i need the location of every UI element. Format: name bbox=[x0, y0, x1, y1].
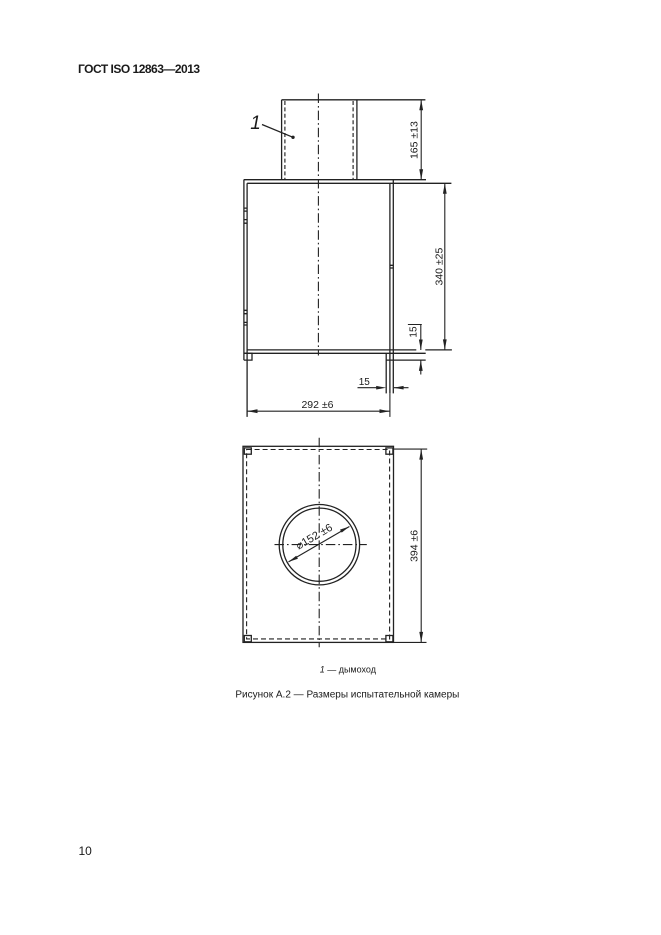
svg-text:15: 15 bbox=[359, 377, 371, 388]
svg-text:ГОСТ ISO 12863—2013: ГОСТ ISO 12863—2013 bbox=[78, 62, 200, 76]
svg-text:15: 15 bbox=[409, 326, 420, 338]
svg-text:1: 1 bbox=[250, 113, 261, 134]
svg-text:165 ±13: 165 ±13 bbox=[409, 121, 421, 159]
svg-text:292 ±6: 292 ±6 bbox=[301, 399, 333, 411]
svg-text:1 — дымоход: 1 — дымоход bbox=[320, 664, 377, 674]
svg-text:340 ±25: 340 ±25 bbox=[433, 248, 445, 286]
svg-text:10: 10 bbox=[79, 844, 93, 858]
svg-text:394 ±6: 394 ±6 bbox=[409, 530, 421, 562]
svg-text:Рисунок А.2 — Размеры испытате: Рисунок А.2 — Размеры испытательной каме… bbox=[235, 689, 459, 700]
